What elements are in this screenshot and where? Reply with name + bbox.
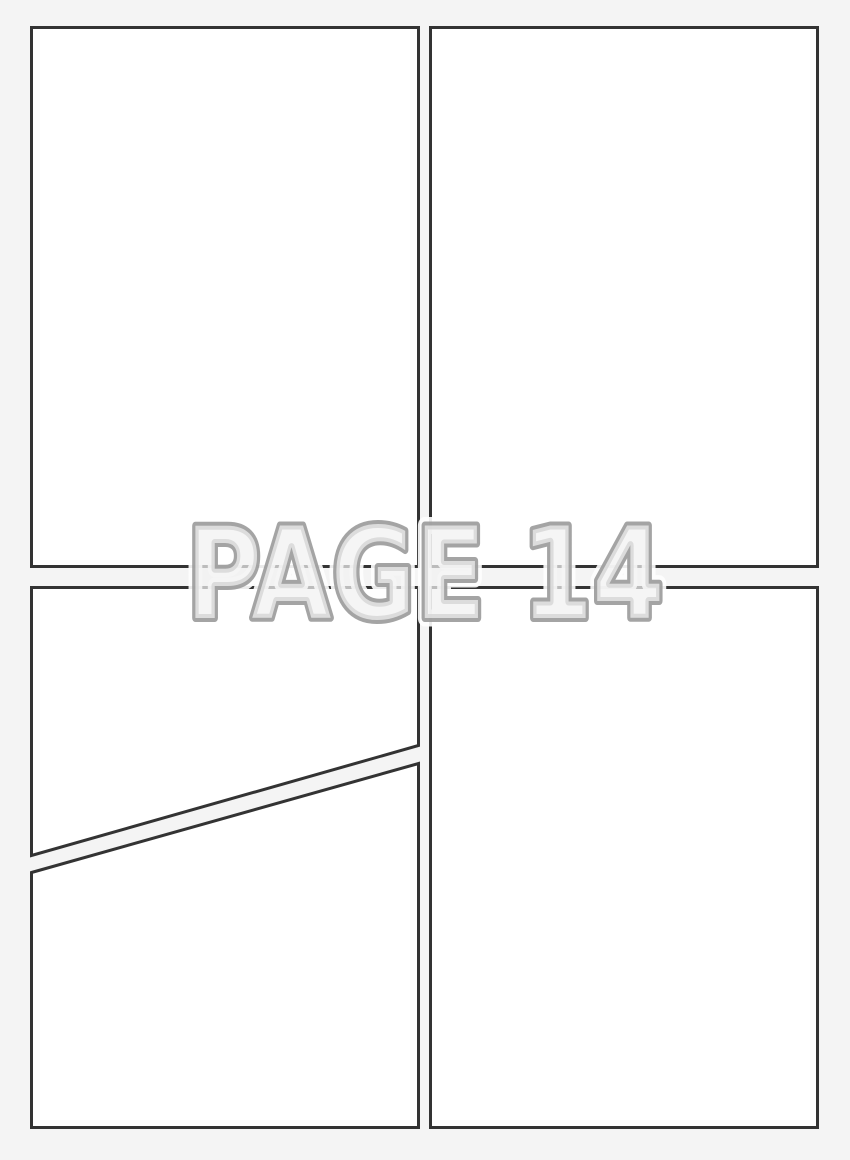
panel-bottom-left-group — [30, 586, 420, 1129]
comic-page-template: PAGE 14 PAGE 14 PAGE 14 — [0, 0, 850, 1160]
panel-bottom-right — [429, 586, 819, 1129]
panel-top-right — [429, 26, 819, 568]
panel-top-left — [30, 26, 420, 568]
